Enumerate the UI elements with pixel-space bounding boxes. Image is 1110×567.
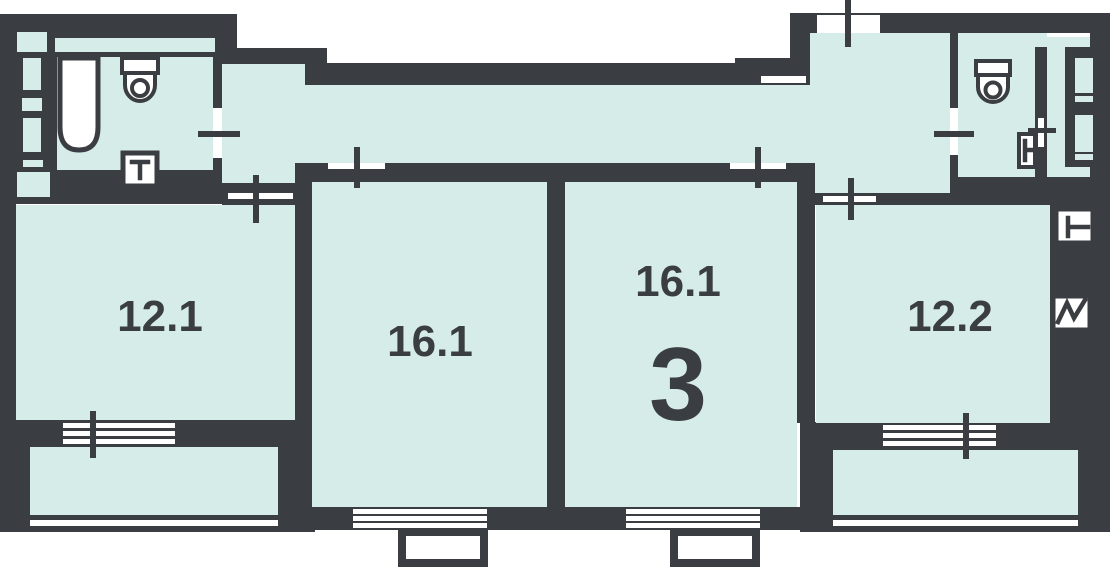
door-cross-12-2 — [848, 178, 854, 220]
room-12-1-door-opening — [228, 193, 293, 199]
window-12-1 — [63, 423, 175, 444]
room-label-12-1: 12.1 — [117, 292, 203, 341]
wc-door-cross — [934, 131, 974, 137]
bathtub-icon — [60, 58, 98, 150]
window-12-2 — [883, 425, 996, 446]
entrance-door-cross — [845, 0, 851, 47]
balcony-right-floor — [833, 450, 1078, 515]
balcony-door-cross-right — [963, 413, 969, 459]
apartment-rooms-count: 3 — [649, 327, 707, 443]
balcony-door-cross-left — [90, 411, 96, 458]
bathroom-door-cross — [198, 131, 240, 137]
room-label-16-1-left: 16.1 — [387, 317, 473, 366]
floor-plan: 12.1 16.1 16.1 12.2 3 — [0, 0, 1110, 567]
sink-icon — [1019, 134, 1035, 167]
washbasin-icon — [123, 153, 157, 186]
door-cross-16-1-right — [755, 147, 761, 188]
window-16-1-left — [353, 509, 487, 528]
shaft-hatch-cross — [1028, 128, 1056, 133]
bathroom-top-window — [55, 38, 215, 52]
balcony-right-glazing — [833, 520, 1078, 526]
door-cross-12-1 — [253, 175, 259, 223]
balcony-left-glazing — [30, 520, 278, 526]
corridor-vent-dash — [761, 76, 806, 83]
towel-rail-icon — [1056, 209, 1093, 243]
balcony-left-floor — [30, 447, 278, 515]
door-cross-16-1-left — [354, 147, 360, 188]
room-label-16-1-right: 16.1 — [635, 257, 721, 306]
electrical-zigzag-icon — [1053, 296, 1090, 330]
window-16-1-right — [626, 509, 760, 528]
floor-plan-svg: 12.1 16.1 16.1 12.2 3 — [0, 0, 1110, 567]
room-label-12-2: 12.2 — [907, 292, 993, 341]
toilet-icon-2 — [976, 61, 1010, 102]
toilet-icon — [122, 58, 158, 101]
